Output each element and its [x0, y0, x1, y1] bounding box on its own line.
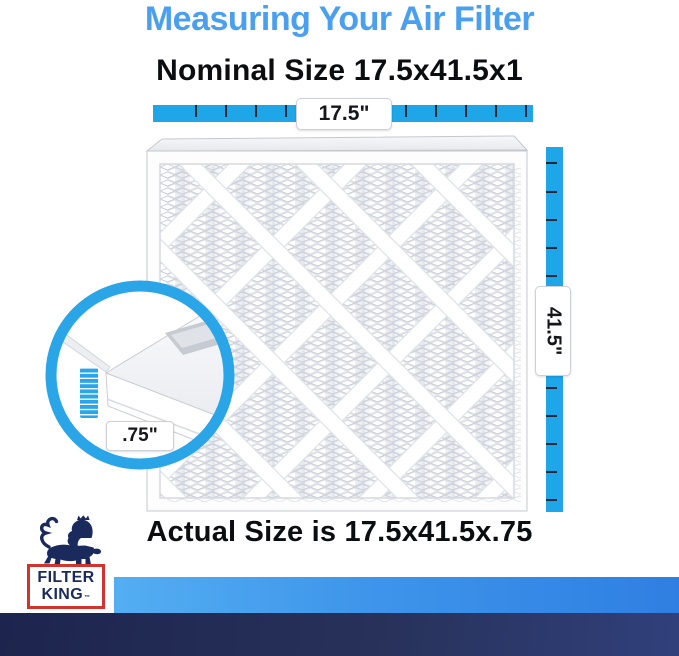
footer-accent-bar — [114, 577, 679, 613]
trademark-symbol: ™ — [84, 595, 90, 601]
brand-name-box: FILTER KING™ — [27, 564, 105, 609]
depth-dimension-label: .75" — [106, 421, 174, 451]
height-dimension-label: 41.5" — [535, 286, 571, 376]
brand-name-line1: FILTER — [37, 570, 94, 586]
page-title: Measuring Your Air Filter — [0, 0, 679, 39]
brand-name-line2: KING™ — [41, 587, 90, 603]
depth-mini-ruler — [80, 368, 98, 418]
air-filter-measuring-infographic: Measuring Your Air Filter Nominal Size 1… — [0, 0, 679, 656]
width-dimension-label: 17.5" — [296, 98, 392, 130]
lion-crown-icon — [33, 513, 105, 567]
filter-top-face — [147, 136, 527, 151]
footer-navy-bar — [0, 613, 679, 656]
nominal-size-heading: Nominal Size 17.5x41.5x1 — [0, 54, 679, 88]
filter-king-logo: FILTER KING™ — [20, 510, 120, 613]
